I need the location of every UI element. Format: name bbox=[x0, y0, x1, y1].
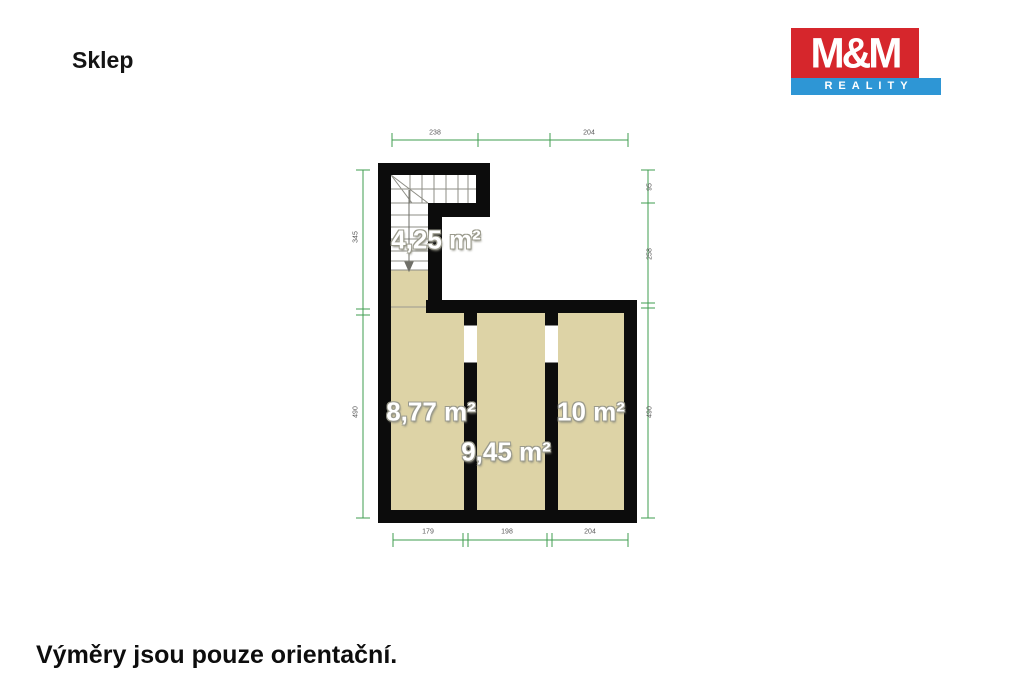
floor-plan bbox=[0, 0, 1024, 683]
dim-right-2: 258 bbox=[647, 248, 654, 260]
area-label-room-right: 10 m² bbox=[557, 397, 625, 428]
dim-bottom-2: 198 bbox=[501, 529, 513, 536]
dim-right-3: 490 bbox=[647, 406, 654, 418]
dim-top-1: 238 bbox=[429, 130, 441, 137]
page: Sklep M&M REALITY bbox=[0, 0, 1024, 683]
disclaimer-text: Výměry jsou pouze orientační. bbox=[36, 641, 397, 670]
dim-bottom-1: 179 bbox=[422, 529, 434, 536]
dim-left-1: 345 bbox=[353, 231, 360, 243]
dim-top-2: 204 bbox=[583, 130, 595, 137]
area-label-room-middle: 9,45 m² bbox=[461, 437, 551, 468]
dim-left-2: 490 bbox=[353, 406, 360, 418]
dim-right-1: 95 bbox=[647, 183, 654, 191]
area-label-staircase: 4,25 m² bbox=[391, 225, 481, 256]
area-label-room-left: 8,77 m² bbox=[386, 397, 476, 428]
dim-bottom-3: 204 bbox=[584, 529, 596, 536]
